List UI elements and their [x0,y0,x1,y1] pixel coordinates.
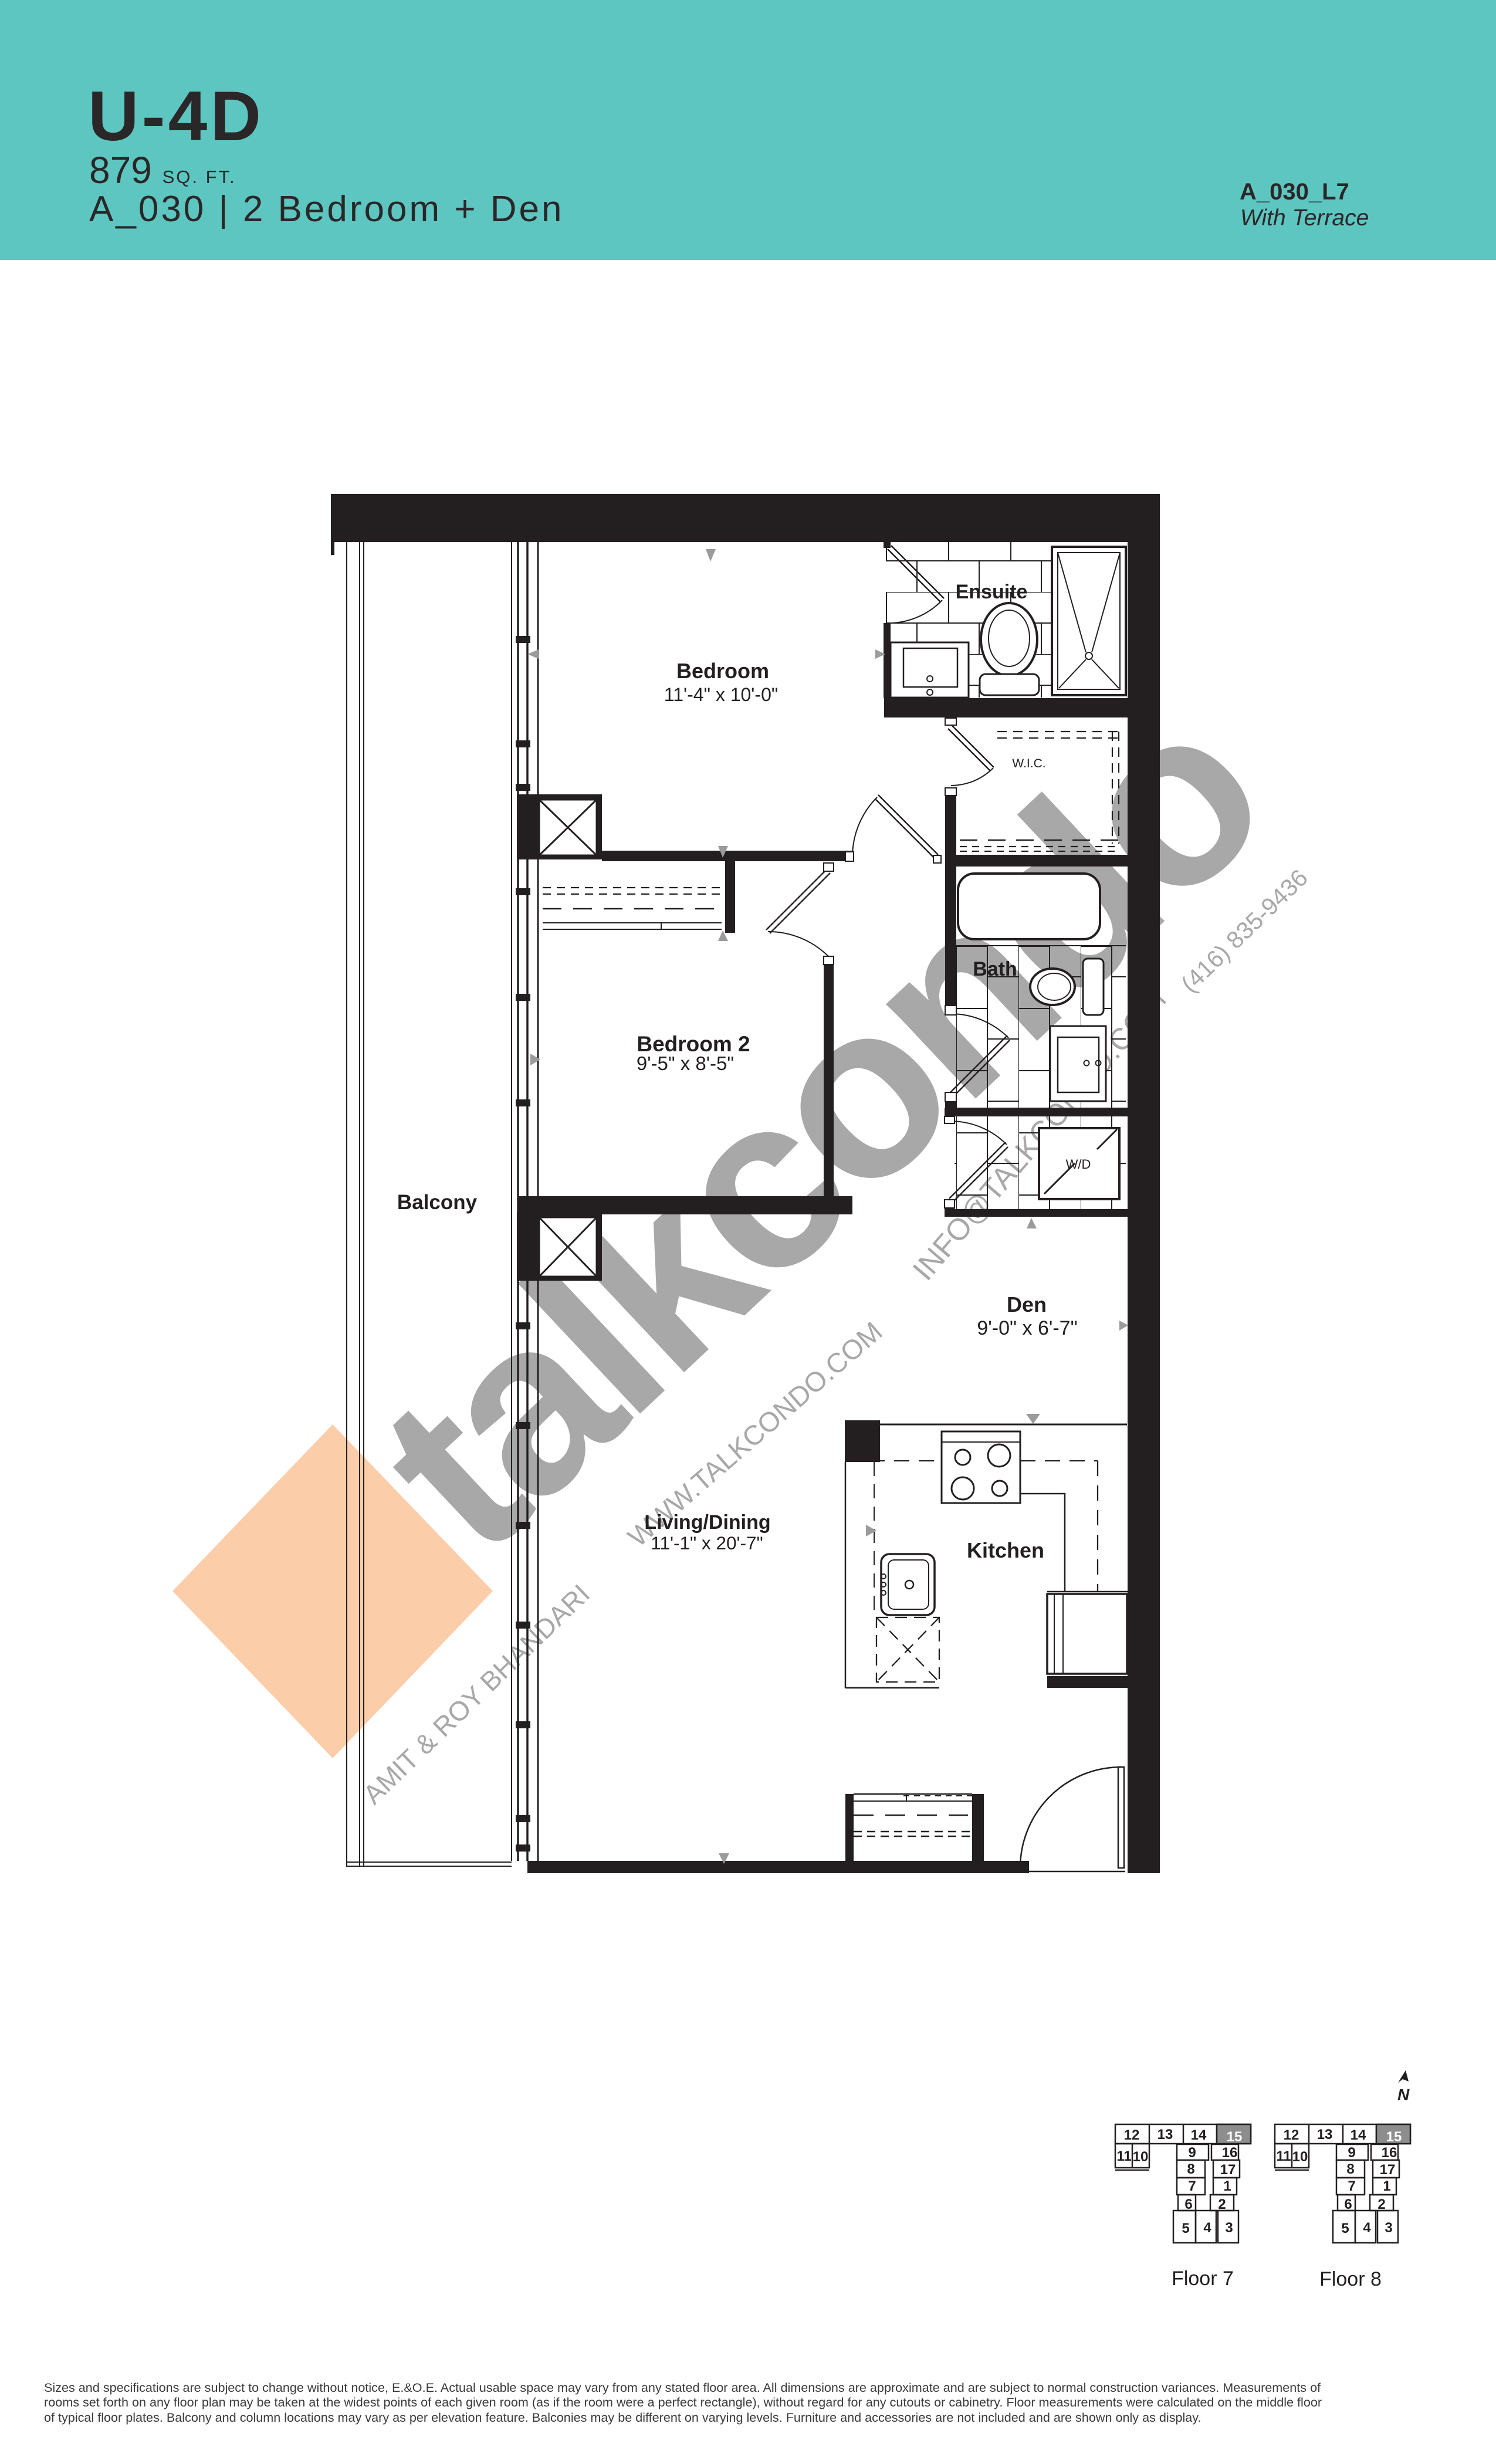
svg-text:Ensuite: Ensuite [956,581,1028,603]
svg-text:10: 10 [1133,2149,1149,2165]
svg-text:W/D: W/D [1066,1157,1091,1172]
svg-text:Bedroom: Bedroom [676,659,769,683]
svg-text:Balcony: Balcony [397,1191,478,1214]
svg-text:13: 13 [1157,2127,1173,2143]
svg-text:7: 7 [1188,2178,1196,2194]
svg-text:W.I.C.: W.I.C. [1012,757,1045,770]
svg-text:3: 3 [1225,2220,1233,2236]
svg-text:9'-5" x 8'-5": 9'-5" x 8'-5" [637,1052,734,1074]
svg-text:Bath: Bath [973,958,1017,980]
svg-text:Den: Den [1007,1292,1047,1316]
svg-text:talkcondo: talkcondo [328,656,1311,1603]
svg-text:Floor 7: Floor 7 [1172,2267,1234,2290]
svg-text:1: 1 [1223,2178,1231,2194]
svg-text:11'-4" x 10'-0": 11'-4" x 10'-0" [664,684,778,705]
svg-text:5: 5 [1182,2221,1189,2236]
svg-text:15: 15 [1227,2129,1243,2145]
svg-text:N: N [1397,2086,1410,2104]
svg-text:17: 17 [1220,2162,1236,2178]
svg-text:11: 11 [1116,2148,1131,2164]
svg-text:9'-0" x 6'-7": 9'-0" x 6'-7" [977,1317,1077,1339]
svg-text:Floor 8: Floor 8 [1319,2268,1382,2290]
svg-text:6: 6 [1184,2196,1192,2212]
svg-text:Living/Dining: Living/Dining [644,1511,770,1534]
svg-text:Kitchen: Kitchen [967,1538,1044,1562]
svg-text:14: 14 [1191,2127,1207,2143]
svg-text:2: 2 [1218,2196,1226,2212]
svg-text:9: 9 [1188,2145,1196,2161]
svg-text:16: 16 [1222,2145,1238,2161]
svg-text:4: 4 [1203,2220,1211,2236]
svg-text:8: 8 [1187,2161,1194,2177]
svg-text:12: 12 [1124,2127,1140,2143]
svg-text:11'-1" x 20'-7": 11'-1" x 20'-7" [651,1532,763,1553]
